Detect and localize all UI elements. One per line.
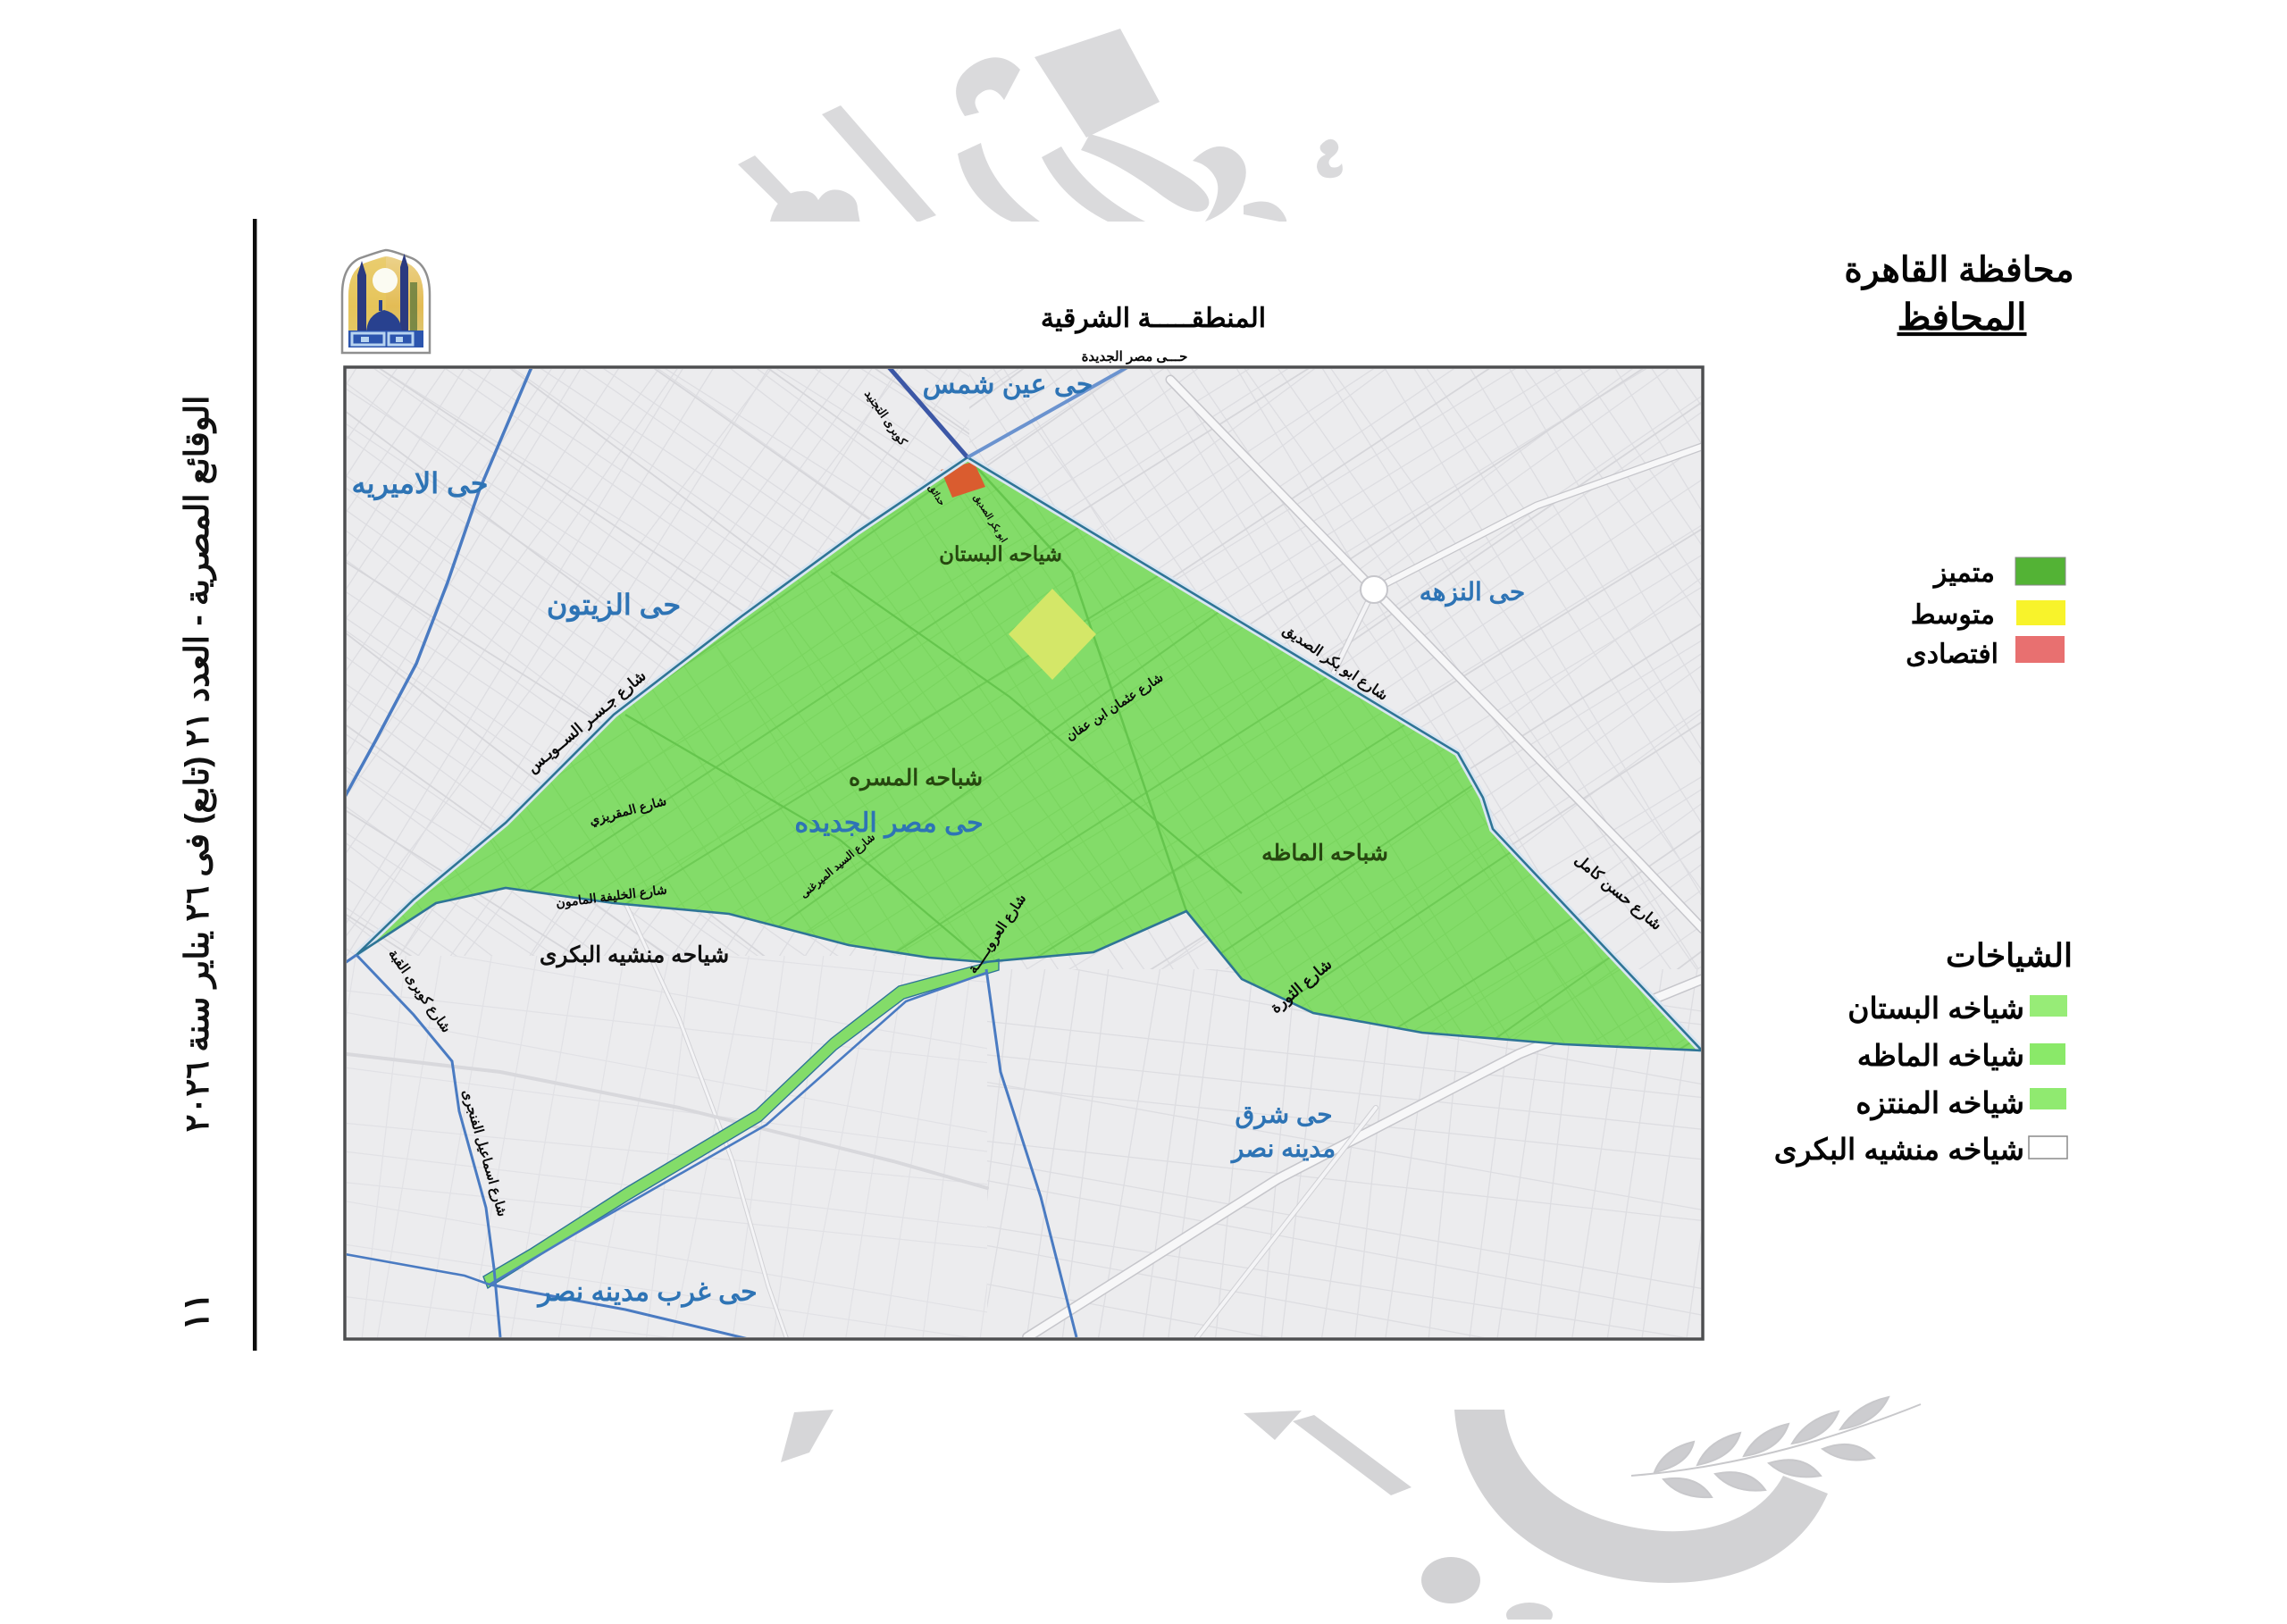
svg-text:حى شرق: حى شرق: [1235, 1101, 1332, 1130]
svg-text:حى الزيتون: حى الزيتون: [547, 589, 681, 623]
svg-text:الشياخات: الشياخات: [1946, 937, 2073, 974]
svg-text:افتصادى: افتصادى: [1906, 640, 1998, 669]
svg-text:الوقائع المصرية - العدد ٢١ (تا: الوقائع المصرية - العدد ٢١ (تابع) فى ٢٦ …: [179, 396, 217, 1133]
svg-text:حى غرب مدينه نصر: حى غرب مدينه نصر: [536, 1277, 757, 1308]
svg-text:المنطقـــــة الشرقية: المنطقـــــة الشرقية: [1041, 304, 1266, 334]
svg-text:محافظة القاهرة: محافظة القاهرة: [1844, 251, 2073, 291]
svg-text:مدينه نصر: مدينه نصر: [1230, 1134, 1336, 1164]
svg-text:١١: ١١: [177, 1293, 216, 1331]
svg-text:شياخه البستان: شياخه البستان: [1847, 992, 2024, 1025]
svg-text:شباحه الماظه: شباحه الماظه: [1261, 841, 1388, 866]
svg-text:شياحه منشيه البكرى: شياحه منشيه البكرى: [540, 942, 729, 968]
svg-text:شباحه المسره: شباحه المسره: [849, 766, 983, 791]
svg-text:حى الاميريه: حى الاميريه: [352, 467, 489, 501]
svg-text:شياخه الماظه: شياخه الماظه: [1857, 1039, 2024, 1072]
svg-text:حى مصر الجديده: حى مصر الجديده: [794, 808, 983, 839]
svg-text:حى عين شمس: حى عين شمس: [923, 370, 1093, 400]
svg-text:متميز: متميز: [1932, 558, 1995, 589]
svg-text:شياخه منشيه البكرى: شياخه منشيه البكرى: [1774, 1133, 2024, 1168]
svg-text:حـــى مصر الجديدة: حـــى مصر الجديدة: [1082, 349, 1188, 364]
svg-text:حى النزهه: حى النزهه: [1420, 578, 1525, 607]
svg-text:متوسط: متوسط: [1911, 600, 1995, 631]
svg-text:المحافظ: المحافظ: [1897, 297, 2026, 338]
svg-text:شياحه البستان: شياحه البستان: [939, 542, 1062, 565]
svg-text:شياخه المنتزه: شياخه المنتزه: [1856, 1086, 2024, 1121]
